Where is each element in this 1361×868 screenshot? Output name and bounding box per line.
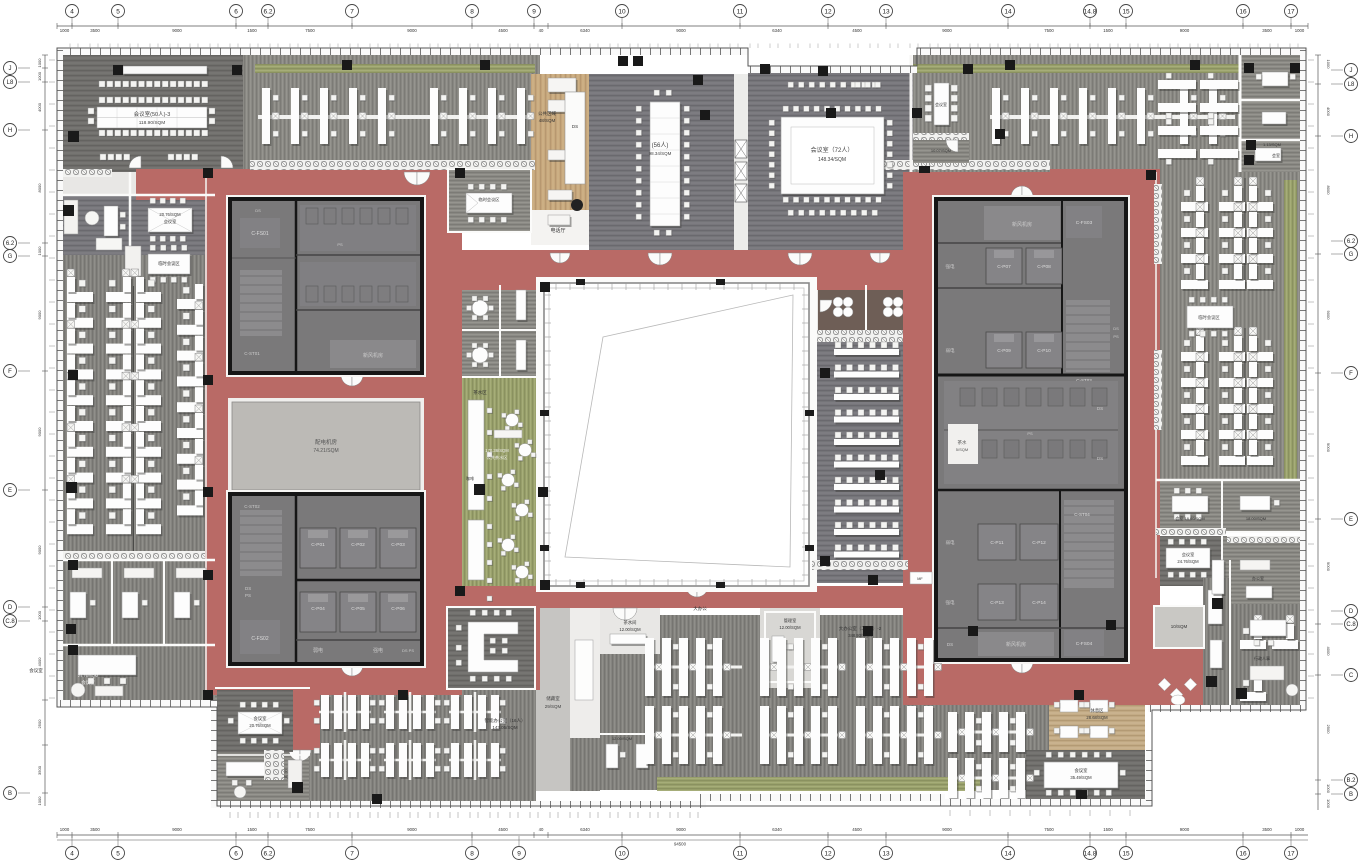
svg-text:14: 14 [1004, 8, 1012, 15]
svg-text:20.76/SQM: 20.76/SQM [249, 723, 271, 728]
svg-text:会议室: 会议室 [935, 101, 947, 107]
svg-text:DS: DS [1097, 406, 1103, 411]
svg-text:14.8: 14.8 [1084, 8, 1097, 15]
svg-text:8000: 8000 [37, 183, 42, 193]
svg-text:15: 15 [1122, 850, 1130, 857]
svg-text:DS PS: DS PS [402, 648, 414, 653]
svg-text:1000: 1000 [37, 796, 42, 806]
svg-text:J: J [1350, 68, 1353, 74]
svg-text:1000: 1000 [1295, 827, 1305, 832]
svg-text:10/SQM: 10/SQM [1171, 624, 1188, 629]
svg-text:E: E [1349, 517, 1353, 523]
svg-text:4: 4 [70, 8, 74, 15]
svg-text:14: 14 [1004, 850, 1012, 857]
svg-text:6340: 6340 [772, 28, 782, 33]
svg-text:9000: 9000 [942, 28, 952, 33]
svg-text:17: 17 [1287, 8, 1295, 15]
svg-text:公共茶水区: 公共茶水区 [487, 454, 508, 461]
svg-text:L8: L8 [1348, 82, 1355, 88]
svg-text:7500: 7500 [1044, 827, 1054, 832]
svg-text:茶水: 茶水 [958, 439, 967, 445]
svg-text:5/SQM: 5/SQM [956, 447, 968, 452]
svg-text:16: 16 [1239, 850, 1247, 857]
svg-text:8: 8 [470, 850, 474, 857]
svg-text:会议室: 会议室 [164, 218, 177, 225]
svg-text:3500: 3500 [1262, 827, 1272, 832]
svg-text:会室 18.00/SQM: 会室 18.00/SQM [1175, 515, 1204, 521]
svg-text:G: G [8, 254, 13, 260]
svg-text:29/SQM: 29/SQM [545, 704, 562, 709]
svg-text:C-P10: C-P10 [1037, 348, 1051, 354]
svg-text:C: C [1349, 673, 1354, 679]
svg-text:储藏室: 储藏室 [546, 695, 560, 702]
svg-text:C-P03: C-P03 [391, 542, 405, 548]
svg-text:9000: 9000 [37, 310, 42, 320]
svg-text:配电机房: 配电机房 [315, 438, 338, 446]
svg-text:C-ST01: C-ST01 [244, 351, 260, 356]
svg-text:6: 6 [234, 8, 238, 15]
svg-text:7: 7 [350, 850, 354, 857]
svg-text:3500: 3500 [90, 28, 100, 33]
svg-text:强电: 强电 [946, 263, 955, 270]
svg-text:F: F [1349, 371, 1353, 377]
svg-text:6.2: 6.2 [263, 8, 272, 15]
svg-text:会议室: 会议室 [29, 667, 43, 674]
svg-text:13: 13 [882, 850, 890, 857]
svg-text:13: 13 [882, 8, 890, 15]
svg-text:行政人事: 行政人事 [1254, 655, 1270, 661]
svg-text:5: 5 [116, 8, 120, 15]
svg-text:9000: 9000 [942, 827, 952, 832]
svg-text:1000: 1000 [37, 246, 42, 256]
svg-text:H: H [8, 128, 12, 134]
svg-text:9000: 9000 [1326, 311, 1331, 321]
svg-text:会议室（72人）: 会议室（72人） [811, 146, 854, 154]
svg-text:C-P09: C-P09 [997, 348, 1011, 354]
svg-text:170.36/SQM: 170.36/SQM [485, 448, 509, 453]
svg-text:DS: DS [1113, 326, 1119, 331]
svg-text:C-P06: C-P06 [391, 606, 405, 612]
svg-text:5: 5 [116, 850, 120, 857]
svg-text:B: B [1349, 792, 1353, 798]
svg-text:C.8: C.8 [1346, 622, 1356, 628]
svg-text:9000: 9000 [37, 545, 42, 555]
svg-text:管理室: 管理室 [784, 617, 797, 624]
svg-text:7500: 7500 [305, 827, 315, 832]
svg-text:DS: DS [1097, 456, 1103, 461]
svg-text:茶水间: 茶水间 [624, 619, 637, 626]
svg-text:办公室: 办公室 [1252, 575, 1264, 581]
svg-text:强电: 强电 [373, 647, 383, 654]
svg-text:1000: 1000 [37, 71, 42, 81]
svg-text:C-P14: C-P14 [1032, 600, 1046, 606]
svg-text:2500: 2500 [1326, 725, 1331, 735]
svg-text:9000: 9000 [407, 827, 417, 832]
svg-text:C-P12: C-P12 [1032, 540, 1046, 546]
svg-text:74.21/SQM: 74.21/SQM [313, 448, 338, 454]
svg-text:24.76/SQM: 24.76/SQM [78, 673, 98, 678]
svg-text:DS: DS [572, 124, 578, 129]
svg-text:4000: 4000 [37, 102, 42, 112]
svg-text:C-FS03: C-FS03 [1076, 220, 1093, 226]
svg-text:智能办公室（16人）: 智能办公室（16人） [484, 717, 525, 724]
svg-text:1500: 1500 [247, 28, 257, 33]
svg-text:新风机房: 新风机房 [1006, 641, 1026, 648]
svg-text:E: E [8, 488, 12, 494]
svg-text:F: F [8, 369, 12, 375]
svg-text:(56人): (56人) [652, 142, 669, 149]
svg-text:电话厅: 电话厅 [550, 227, 565, 234]
svg-text:1000: 1000 [1326, 799, 1331, 809]
svg-text:H: H [1349, 134, 1353, 140]
svg-text:4000: 4000 [37, 657, 42, 667]
svg-text:9000: 9000 [1326, 562, 1331, 572]
svg-text:28.68/SQM: 28.68/SQM [1086, 715, 1108, 720]
svg-text:1500: 1500 [1103, 827, 1113, 832]
svg-text:1500: 1500 [1103, 28, 1113, 33]
svg-text:9: 9 [517, 850, 521, 857]
svg-text:大办公室（工位2）-2: 大办公室（工位2）-2 [839, 625, 882, 632]
svg-text:临时会议区: 临时会议区 [479, 196, 500, 203]
svg-text:20.76/SQM: 20.76/SQM [159, 212, 181, 217]
svg-text:1000: 1000 [60, 827, 70, 832]
svg-text:临时会议区: 临时会议区 [158, 260, 180, 267]
svg-text:12.00/SQM: 12.00/SQM [779, 625, 801, 630]
svg-text:15: 15 [1122, 8, 1130, 15]
svg-text:9: 9 [532, 8, 536, 15]
svg-text:35.49/SQM: 35.49/SQM [1070, 775, 1092, 780]
svg-text:会室: 会室 [1272, 152, 1280, 158]
svg-text:会议室(50人)-3: 会议室(50人)-3 [134, 110, 171, 118]
svg-text:弱电: 弱电 [946, 347, 955, 354]
svg-text:9000: 9000 [676, 827, 686, 832]
svg-text:9000: 9000 [172, 28, 182, 33]
svg-text:弱电: 弱电 [313, 647, 323, 654]
svg-text:G: G [1349, 252, 1354, 258]
svg-text:B.2: B.2 [1346, 778, 1356, 784]
svg-text:9000: 9000 [1326, 443, 1331, 453]
svg-text:6.2: 6.2 [1347, 239, 1356, 245]
svg-text:3500: 3500 [37, 765, 42, 775]
svg-text:临时会议区: 临时会议区 [1198, 314, 1220, 321]
svg-text:9000: 9000 [407, 28, 417, 33]
svg-text:咖啡: 咖啡 [466, 475, 474, 481]
svg-text:强电: 强电 [946, 599, 955, 606]
svg-text:C-ST04: C-ST04 [1074, 512, 1090, 517]
svg-text:C-P05: C-P05 [351, 606, 365, 612]
svg-text:9000: 9000 [1180, 28, 1190, 33]
svg-text:B: B [8, 791, 12, 797]
svg-text:PS: PS [337, 242, 343, 247]
svg-text:9000: 9000 [37, 427, 42, 437]
svg-text:PS: PS [1027, 431, 1033, 436]
svg-text:3500: 3500 [1262, 28, 1272, 33]
svg-text:18.00/SQM: 18.00/SQM [1246, 516, 1266, 521]
svg-text:7500: 7500 [305, 28, 315, 33]
svg-text:4500: 4500 [498, 28, 508, 33]
svg-text:8000: 8000 [1326, 186, 1331, 196]
svg-text:9000: 9000 [172, 827, 182, 832]
svg-text:会议室: 会议室 [1075, 767, 1089, 774]
svg-text:大办公: 大办公 [693, 605, 707, 612]
svg-text:7: 7 [350, 8, 354, 15]
svg-text:C-FS04: C-FS04 [1076, 641, 1093, 647]
svg-text:148.34/SQM: 148.34/SQM [818, 157, 846, 163]
svg-text:11: 11 [737, 850, 744, 857]
svg-text:17: 17 [1287, 850, 1295, 857]
svg-text:C-P13: C-P13 [990, 600, 1004, 606]
svg-text:新风机房: 新风机房 [363, 352, 383, 359]
svg-text:12: 12 [824, 850, 832, 857]
svg-text:48/SQM: 48/SQM [539, 118, 556, 123]
svg-text:16: 16 [1239, 8, 1247, 15]
svg-text:休息区: 休息区 [1091, 707, 1105, 714]
svg-text:10: 10 [618, 850, 626, 857]
svg-text:L8: L8 [7, 80, 14, 86]
svg-text:6.2: 6.2 [6, 241, 15, 247]
svg-text:D: D [8, 605, 13, 611]
svg-text:C.8: C.8 [5, 619, 15, 625]
svg-text:40: 40 [539, 28, 544, 33]
svg-text:C-FS02: C-FS02 [251, 636, 268, 642]
svg-text:4: 4 [70, 850, 74, 857]
svg-text:12: 12 [824, 8, 832, 15]
svg-text:新风机房: 新风机房 [1012, 221, 1032, 228]
svg-text:4500: 4500 [498, 827, 508, 832]
svg-text:C-P11: C-P11 [990, 540, 1004, 546]
svg-text:9000: 9000 [676, 28, 686, 33]
svg-text:143.05/SQM: 143.05/SQM [492, 725, 518, 730]
svg-text:C-FS01: C-FS01 [251, 231, 268, 237]
svg-text:C-P08: C-P08 [1037, 264, 1051, 270]
svg-text:公共区域: 公共区域 [538, 110, 556, 117]
svg-text:4500: 4500 [852, 827, 862, 832]
svg-text:3500: 3500 [90, 827, 100, 832]
svg-text:14.8: 14.8 [1084, 850, 1097, 857]
svg-text:6: 6 [234, 850, 238, 857]
svg-text:4500: 4500 [852, 28, 862, 33]
svg-text:PS: PS [245, 593, 251, 598]
svg-text:C-P04: C-P04 [311, 606, 325, 612]
svg-text:弱电: 弱电 [946, 539, 955, 546]
svg-text:40: 40 [539, 827, 544, 832]
svg-text:6340: 6340 [580, 827, 590, 832]
svg-text:4000: 4000 [1326, 647, 1331, 657]
svg-text:1000: 1000 [37, 58, 42, 68]
svg-text:茶水区: 茶水区 [473, 389, 487, 395]
svg-text:11: 11 [737, 8, 744, 15]
svg-text:C-P07: C-P07 [997, 264, 1011, 270]
svg-text:1000: 1000 [1326, 60, 1331, 70]
svg-text:10: 10 [618, 8, 626, 15]
svg-text:24.76/SQM: 24.76/SQM [1177, 559, 1199, 564]
svg-text:PS: PS [1113, 334, 1119, 339]
svg-text:1000: 1000 [1295, 28, 1305, 33]
svg-text:9000: 9000 [1180, 827, 1190, 832]
svg-text:DS: DS [947, 642, 953, 647]
svg-text:12.00/SQM: 12.00/SQM [612, 736, 632, 741]
svg-text:10.07/SQM: 10.07/SQM [931, 148, 951, 153]
svg-text:1.13/SQM: 1.13/SQM [1263, 142, 1281, 147]
svg-text:98.34/SQM: 98.34/SQM [649, 151, 672, 156]
svg-text:6340: 6340 [772, 827, 782, 832]
svg-text:94500: 94500 [674, 842, 687, 847]
svg-text:会议室: 会议室 [254, 715, 268, 722]
svg-text:DS: DS [255, 208, 261, 213]
svg-text:D: D [1349, 609, 1354, 615]
svg-text:C-P01: C-P01 [311, 542, 325, 548]
svg-text:7500: 7500 [1044, 28, 1054, 33]
svg-text:8: 8 [470, 8, 474, 15]
svg-text:6340: 6340 [580, 28, 590, 33]
svg-text:1000: 1000 [60, 28, 70, 33]
svg-text:1000: 1000 [1326, 784, 1331, 794]
svg-text:J: J [9, 66, 12, 72]
svg-text:1000: 1000 [37, 610, 42, 620]
svg-text:C-ST02: C-ST02 [244, 504, 260, 509]
svg-text:118.90/SQM: 118.90/SQM [139, 120, 166, 126]
svg-text:会议室: 会议室 [1182, 551, 1195, 558]
svg-text:C-P02: C-P02 [351, 542, 365, 548]
svg-text:会议室: 会议室 [81, 679, 95, 686]
svg-text:6.2: 6.2 [263, 850, 272, 857]
svg-text:DS: DS [245, 586, 251, 591]
svg-text:2500: 2500 [37, 719, 42, 729]
svg-text:1500: 1500 [247, 827, 257, 832]
svg-text:MF: MF [917, 577, 923, 581]
svg-text:12.00/SQM: 12.00/SQM [619, 627, 641, 632]
svg-text:4000: 4000 [1326, 107, 1331, 117]
